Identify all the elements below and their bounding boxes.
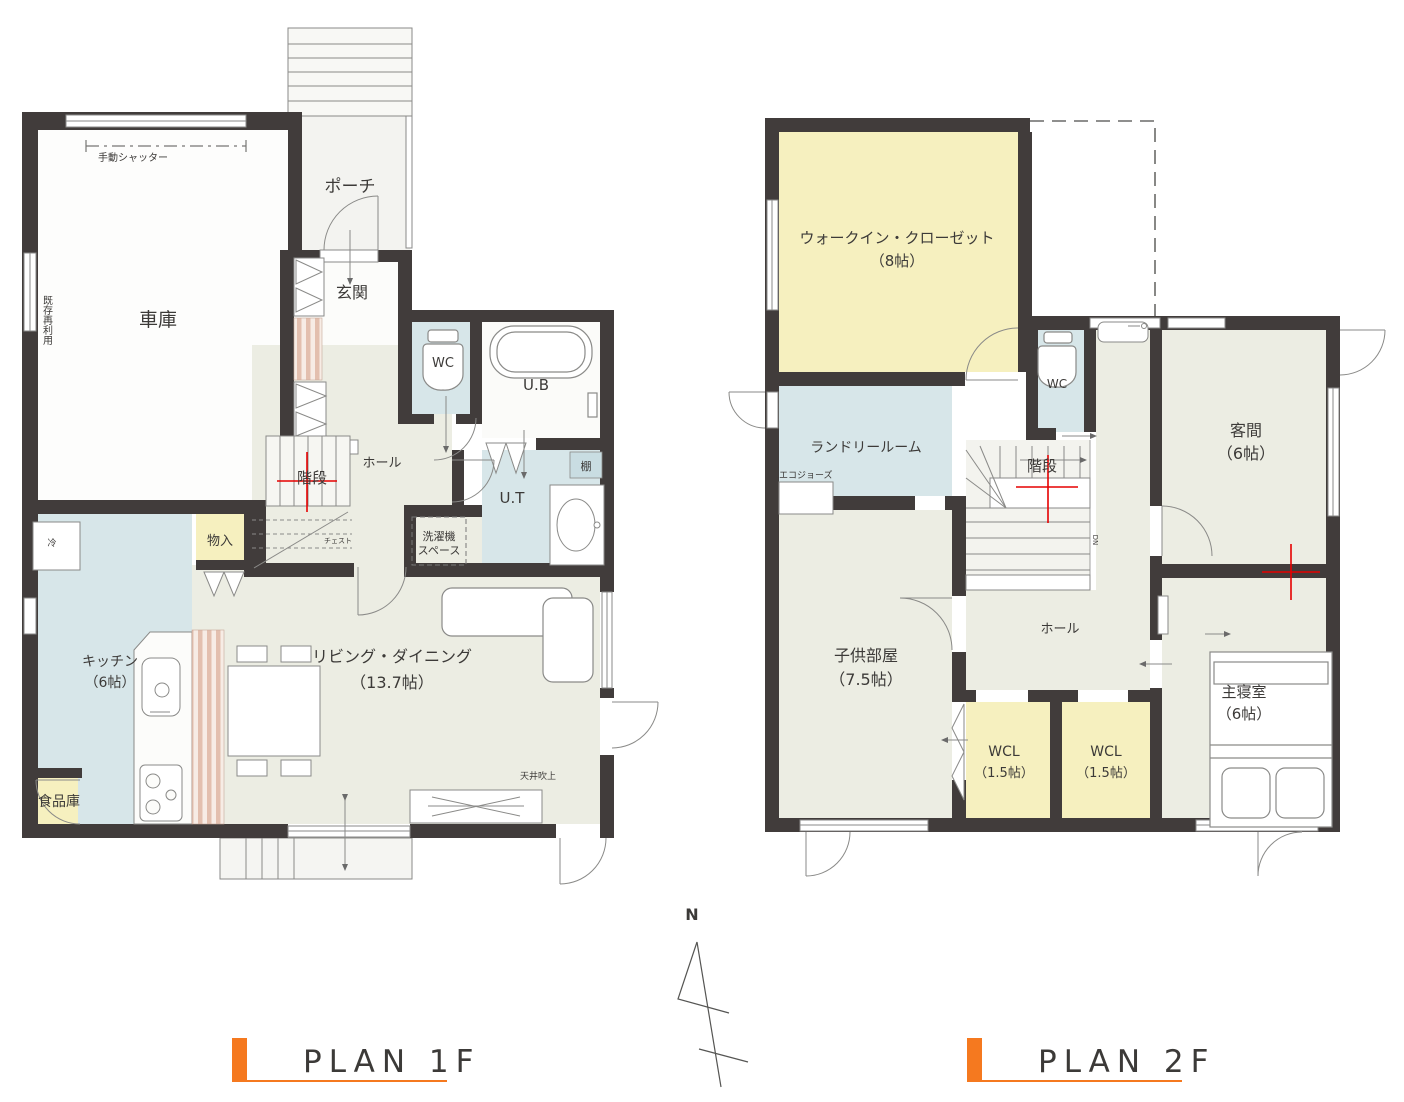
dining-table-icon (228, 646, 320, 776)
pantry-label: 食品庫 (38, 793, 80, 810)
porch-steps (288, 28, 412, 116)
plan1f-title-bar (232, 1038, 247, 1082)
plan2f-title: PLAN 2F (967, 1038, 1215, 1082)
washer-label-2: スペース (418, 544, 461, 557)
void-dashed-outline (1030, 121, 1155, 316)
kids-label: 子供部屋 (834, 646, 898, 665)
stairs2f-label: 階段 (1027, 457, 1057, 475)
deck-steps (220, 838, 412, 879)
shelf-label: 棚 (581, 459, 592, 473)
hall1f-label: ホール (362, 456, 401, 471)
plan2f-title-text: PLAN 2F (1038, 1044, 1215, 1080)
shutter-label: 手動シャッター (98, 151, 168, 164)
wcl2-room (1062, 702, 1150, 818)
wcl1-room (966, 702, 1050, 818)
ecojozu-label: エコジョーズ (779, 469, 833, 481)
wcl2-label: WCL (1090, 744, 1122, 760)
garage-label: 車庫 (139, 309, 177, 331)
wc2f-label: WC (1047, 377, 1067, 391)
wic-size-label: （8帖） (870, 252, 925, 270)
guest-size-label: （6帖） (1217, 444, 1275, 463)
kitchen-size-label: （6帖） (85, 675, 136, 691)
washer-label-1: 洗濯機 (423, 529, 456, 543)
porch-label: ポーチ (325, 177, 376, 197)
living-label: リビング・ダイニング (312, 647, 472, 666)
washbasin-icon (550, 485, 604, 565)
north-arrow-icon: N (678, 905, 748, 1087)
plan1f-title-text: PLAN 1F (303, 1044, 480, 1080)
chest-label: チェスト (324, 537, 352, 545)
ut-label: U.T (500, 489, 526, 507)
floorplan-canvas: ポーチ 車庫 手動シャッター 既存再利用 玄関 WC U.B ホール 階段 U.… (0, 0, 1404, 1102)
kitchen-label: キッチン (82, 654, 138, 670)
entrance-label: 玄関 (336, 283, 368, 302)
stairs1f-label: 階段 (297, 469, 327, 487)
tv-board-icon (410, 790, 542, 823)
kitchen-partition-stripe (192, 630, 224, 824)
plan1f-title: PLAN 1F (232, 1038, 480, 1082)
plan2f-group: ウォークイン・クローゼット （8帖） WC 客間 （6帖） ランドリールーム エ… (729, 118, 1385, 876)
stairs-1f (252, 436, 352, 568)
wcl1-label: WCL (988, 744, 1020, 760)
fridge-label: 冷 (47, 537, 56, 549)
wcl2-size-label: （1.5帖） (1076, 766, 1136, 781)
guest-label: 客間 (1230, 421, 1262, 440)
hall2f-label: ホール (1040, 622, 1079, 637)
master-label: 主寝室 (1221, 683, 1266, 701)
floorplan-drawing: ポーチ 車庫 手動シャッター 既存再利用 玄関 WC U.B ホール 階段 U.… (0, 0, 1404, 1102)
reuse-label: 既存再利用 (41, 295, 53, 346)
plan1f-group: ポーチ 車庫 手動シャッター 既存再利用 玄関 WC U.B ホール 階段 U.… (22, 28, 658, 884)
living-size-label: （13.7帖） (350, 673, 434, 692)
bath-label: U.B (523, 376, 549, 394)
down-label: DN (1091, 535, 1099, 546)
bed-icon (1210, 652, 1332, 827)
north-label: N (685, 905, 698, 924)
washbasin2f-icon (1098, 322, 1148, 342)
wic-label: ウォークイン・クローゼット (799, 229, 994, 247)
wc1f-label: WC (432, 356, 454, 371)
coat-closet-stripe (294, 318, 322, 380)
wcl1-size-label: （1.5帖） (974, 766, 1034, 781)
kitchen-counter-icon (134, 632, 192, 824)
water-heater-icon (779, 482, 833, 514)
laundry-label: ランドリールーム (810, 440, 922, 456)
washer-nook-floor (452, 510, 482, 567)
storage1f-label: 物入 (207, 534, 233, 549)
master-size-label: （6帖） (1217, 705, 1272, 723)
plan2f-title-bar (967, 1038, 982, 1082)
kids-size-label: （7.5帖） (829, 670, 902, 689)
hall2f-room (966, 590, 1150, 690)
ceiling-label: 天井吹上 (520, 770, 556, 782)
